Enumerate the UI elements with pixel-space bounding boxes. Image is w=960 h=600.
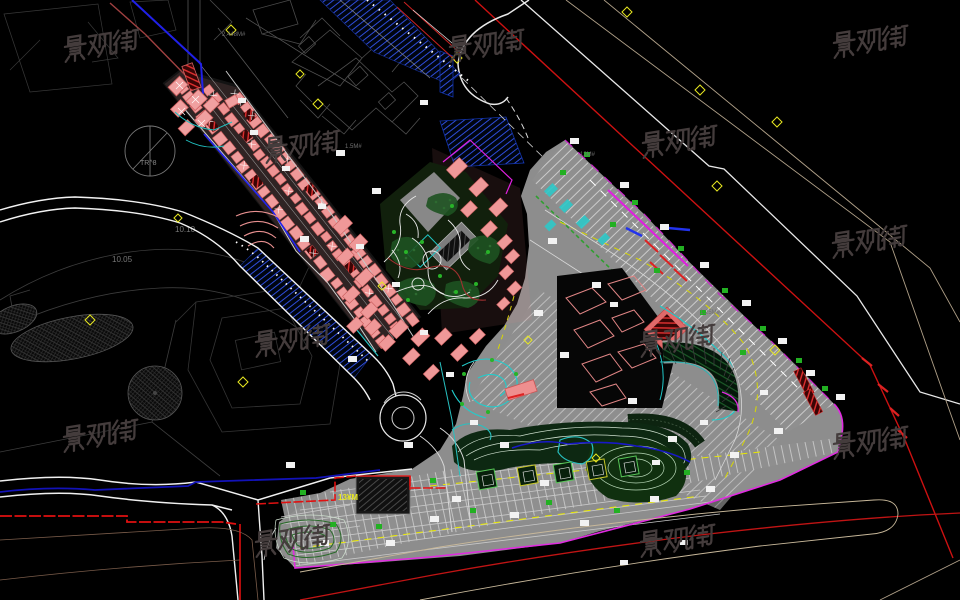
svg-text:12M#: 12M# bbox=[580, 152, 596, 158]
svg-text:13¥M: 13¥M bbox=[338, 493, 358, 502]
svg-text:1.25M#: 1.25M# bbox=[700, 310, 721, 316]
svg-text:1.5M#: 1.5M# bbox=[345, 144, 362, 150]
svg-text:2.448M#: 2.448M# bbox=[222, 32, 246, 38]
svg-text:10.05: 10.05 bbox=[112, 255, 133, 264]
svg-text:TR^8: TR^8 bbox=[140, 160, 157, 167]
